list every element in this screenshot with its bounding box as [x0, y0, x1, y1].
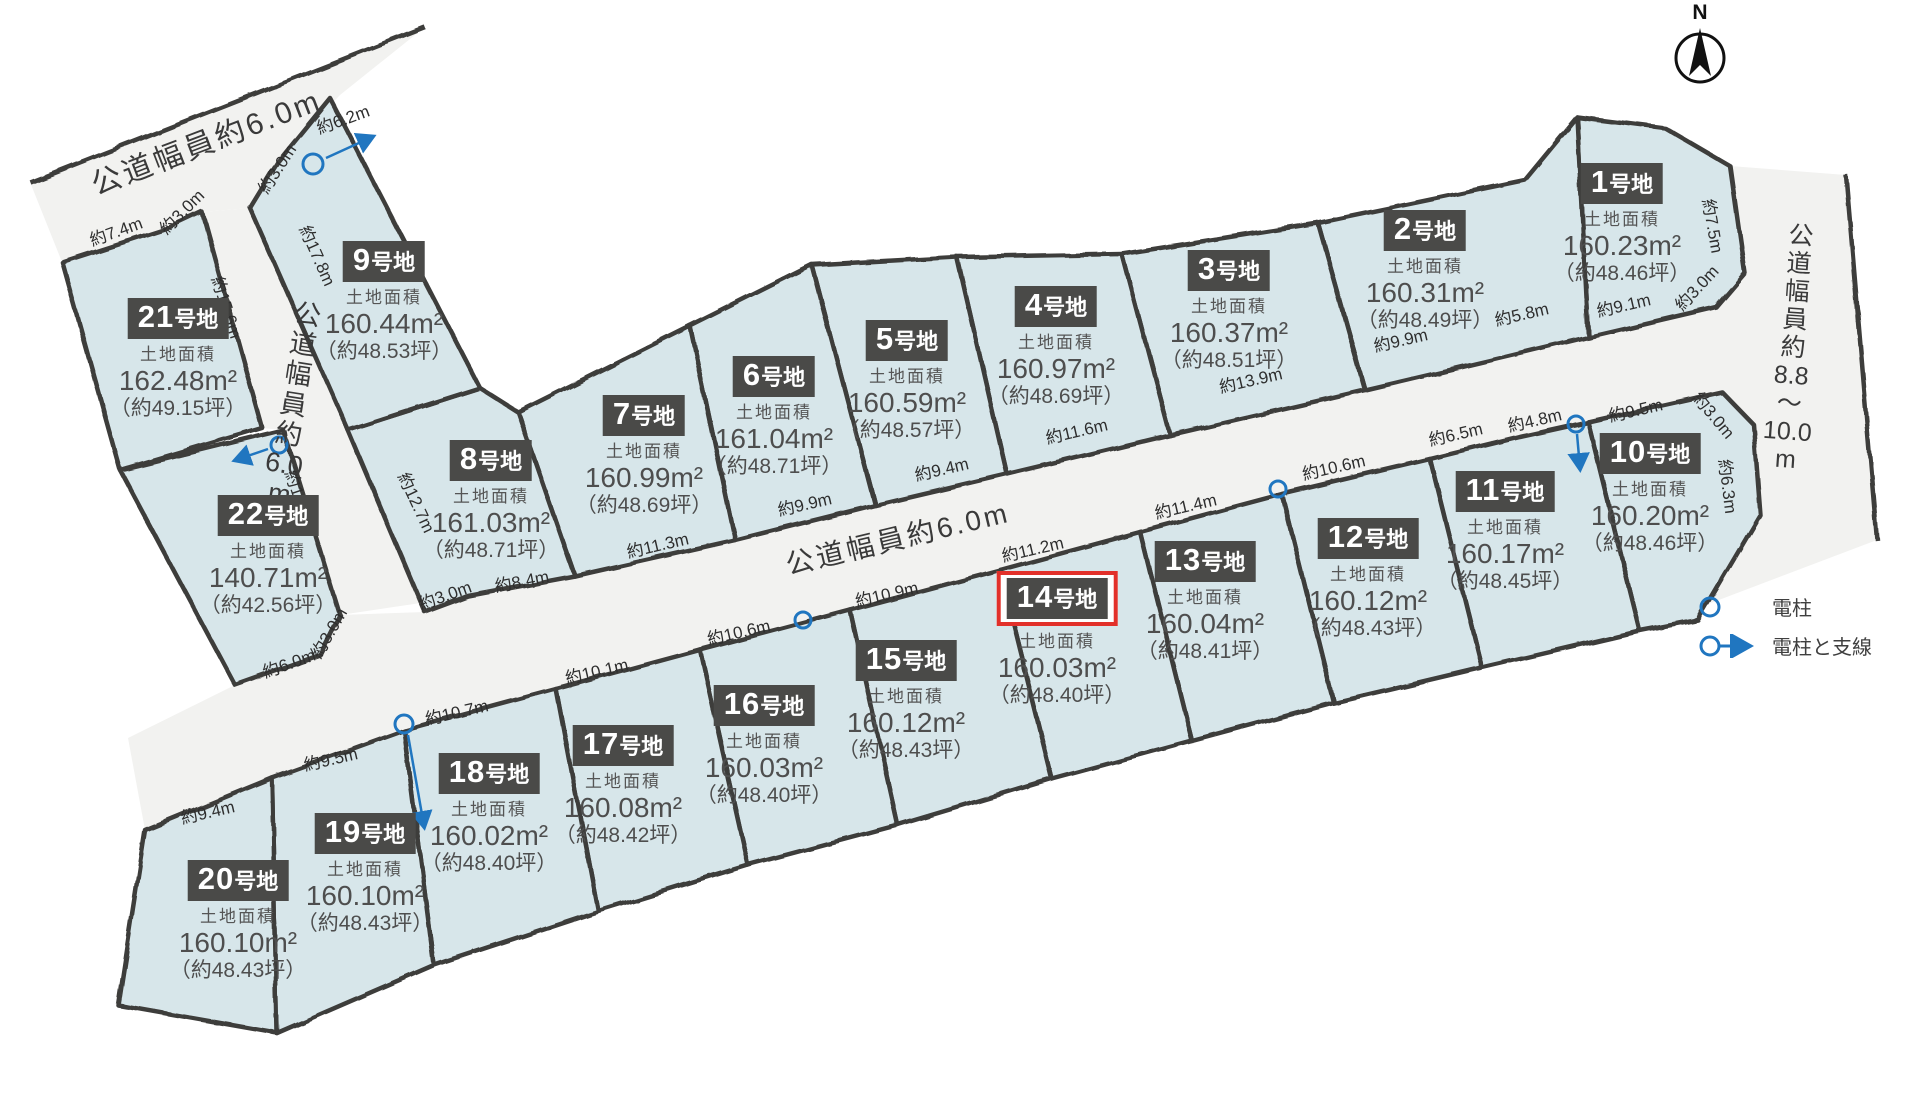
road-label-char: 〜 [1776, 389, 1803, 419]
road-label-char: 6.0 [263, 446, 305, 482]
area-value: 160.10m² [297, 881, 434, 912]
plot-badge: 1号地 [1581, 163, 1663, 204]
area-tsubo: （約48.40坪） [989, 684, 1126, 707]
area-value: 161.04m² [706, 424, 843, 455]
plot-number: 20 [198, 861, 234, 896]
plot-badge: 15号地 [856, 640, 957, 681]
plot-number: 3 [1198, 251, 1216, 286]
area-tsubo: （約48.43坪） [170, 959, 307, 982]
road-label-char: 員 [278, 387, 309, 421]
area-caption: 土地面積 [1582, 481, 1719, 500]
area-caption: 土地面積 [170, 908, 307, 927]
plot-label-16: 16号地土地面積160.03m²（約48.40坪） [696, 685, 833, 807]
road-label-char: 道 [1786, 249, 1813, 279]
legend-pole-wire-row: 電柱と支線 [1688, 631, 1872, 660]
plot-label-3: 3号地土地面積160.37m²（約48.51坪） [1161, 250, 1298, 372]
plot-suffix: 号地 [1364, 527, 1408, 552]
area-caption: 土地面積 [555, 773, 692, 792]
plot-badge: 4号地 [1015, 286, 1097, 327]
plot-label-7: 7号地土地面積160.99m²（約48.69坪） [576, 395, 713, 517]
plot-label-17: 17号地土地面積160.08m²（約48.42坪） [555, 725, 692, 847]
area-tsubo: （約48.42坪） [555, 824, 692, 847]
plot-badge: 13号地 [1155, 541, 1256, 582]
road-label-char: 約 [273, 417, 304, 451]
area-caption: 土地面積 [110, 346, 247, 365]
plot-label-5: 5号地土地面積160.59m²（約48.57坪） [839, 320, 976, 442]
area-tsubo: （約48.51坪） [1161, 349, 1298, 372]
area-tsubo: （約48.46坪） [1582, 532, 1719, 555]
plot-label-9: 9号地土地面積160.44m²（約48.53坪） [316, 241, 453, 363]
area-tsubo: （約48.43坪） [1300, 617, 1437, 640]
plot-suffix: 号地 [1201, 550, 1245, 575]
plot-badge: 10号地 [1600, 433, 1701, 474]
plot-number: 1 [1591, 164, 1609, 199]
area-tsubo: （約48.40坪） [696, 784, 833, 807]
plot-number: 7 [613, 396, 631, 431]
road-label-char: m [1774, 445, 1797, 474]
area-caption: 土地面積 [1357, 258, 1494, 277]
plot-label-10: 10号地土地面積160.20m²（約48.46坪） [1582, 433, 1719, 555]
legend-pole-row: 電柱 [1688, 592, 1872, 621]
plot-badge: 11号地 [1456, 471, 1555, 512]
area-value: 160.03m² [696, 753, 833, 784]
area-value: 160.12m² [838, 708, 975, 739]
plot-label-21: 21号地土地面積162.48m²（約49.15坪） [110, 298, 247, 420]
area-caption: 土地面積 [297, 861, 434, 880]
area-tsubo: （約48.53坪） [316, 340, 453, 363]
area-caption: 土地面積 [989, 633, 1126, 652]
area-caption: 土地面積 [988, 334, 1125, 353]
land-plot-map: 約7.4m約3.0m約15.6m約3.0m約6.2m約17.8m約14.7m約1… [0, 0, 1920, 1100]
north-n-text: N [1668, 2, 1732, 23]
road-label-char: 幅 [1784, 277, 1811, 307]
area-caption: 土地面積 [839, 368, 976, 387]
plot-number: 11 [1466, 472, 1501, 507]
area-value: 160.03m² [989, 653, 1126, 684]
plot-suffix: 号地 [761, 365, 805, 390]
area-tsubo: （約48.49坪） [1357, 309, 1494, 332]
plot-badge: 20号地 [188, 860, 289, 901]
plot-label-8: 8号地土地面積161.03m²（約48.71坪） [423, 440, 560, 562]
plot-suffix: 号地 [1412, 219, 1456, 244]
plot-badge: 22号地 [218, 495, 319, 536]
plot-suffix: 号地 [371, 250, 415, 275]
legend-pole-wire-label: 電柱と支線 [1772, 631, 1872, 660]
legend-pole-label: 電柱 [1772, 592, 1812, 621]
utility-pole-icon [1688, 595, 1760, 619]
plot-number: 22 [228, 496, 264, 531]
plot-number: 21 [138, 299, 174, 334]
plot-badge: 9号地 [343, 241, 425, 282]
area-tsubo: （約49.15坪） [110, 397, 247, 420]
area-caption: 土地面積 [423, 488, 560, 507]
plot-label-6: 6号地土地面積161.04m²（約48.71坪） [706, 356, 843, 478]
road-label-char: 員 [1782, 305, 1809, 335]
area-tsubo: （約48.41坪） [1137, 640, 1274, 663]
area-caption: 土地面積 [316, 289, 453, 308]
area-tsubo: （約48.69坪） [576, 494, 713, 517]
plot-number: 19 [325, 814, 361, 849]
area-tsubo: （約48.46坪） [1554, 262, 1691, 285]
area-value: 162.48m² [110, 366, 247, 397]
plot-number: 13 [1165, 542, 1201, 577]
road-label-char: 幅 [282, 358, 313, 392]
plot-number: 18 [449, 754, 485, 789]
plot-label-14: 14号地土地面積160.03m²（約48.40坪） [989, 571, 1126, 707]
plot-suffix: 号地 [234, 869, 278, 894]
area-value: 140.71m² [200, 563, 337, 594]
plot-number: 14 [1017, 579, 1053, 614]
area-value: 160.20m² [1582, 501, 1719, 532]
plot-label-13: 13号地土地面積160.04m²（約48.41坪） [1137, 541, 1274, 663]
area-value: 160.04m² [1137, 609, 1274, 640]
area-value: 160.17m² [1437, 539, 1574, 570]
plot-label-4: 4号地土地面積160.97m²（約48.69坪） [988, 286, 1125, 408]
area-value: 160.12m² [1300, 586, 1437, 617]
road-label-char: 8.8 [1773, 360, 1810, 390]
plot-label-19: 19号地土地面積160.10m²（約48.43坪） [297, 813, 434, 935]
area-caption: 土地面積 [576, 443, 713, 462]
area-value: 160.02m² [421, 821, 558, 852]
utility-pole-wire-icon [1688, 634, 1760, 658]
area-value: 160.99m² [576, 463, 713, 494]
area-tsubo: （約48.71坪） [706, 455, 843, 478]
plot-suffix: 号地 [485, 762, 529, 787]
plot-number: 12 [1328, 519, 1364, 554]
road-label-char: 約 [1780, 333, 1807, 363]
plot-suffix: 号地 [361, 822, 405, 847]
area-caption: 土地面積 [421, 801, 558, 820]
plot-suffix: 号地 [1216, 259, 1260, 284]
plot-suffix: 号地 [1043, 295, 1087, 320]
map-legend: 電柱 電柱と支線 [1688, 592, 1872, 670]
plot-badge: 18号地 [439, 753, 540, 794]
area-caption: 土地面積 [1300, 566, 1437, 585]
area-caption: 土地面積 [1554, 211, 1691, 230]
plot-label-20: 20号地土地面積160.10m²（約48.43坪） [170, 860, 307, 982]
plot-suffix: 号地 [1609, 172, 1653, 197]
area-value: 161.03m² [423, 508, 560, 539]
plot-badge: 8号地 [450, 440, 532, 481]
plot-badge: 17号地 [573, 725, 674, 766]
road-label-char: 公 [1788, 221, 1815, 251]
plot-number: 15 [866, 641, 902, 676]
plot-badge: 3号地 [1188, 250, 1270, 291]
area-tsubo: （約48.45坪） [1437, 570, 1574, 593]
area-tsubo: （約48.43坪） [838, 739, 975, 762]
road-label-char: 道 [287, 328, 318, 362]
plot-number: 6 [743, 357, 761, 392]
north-label: N [1668, 2, 1732, 23]
area-value: 160.10m² [170, 928, 307, 959]
area-caption: 土地面積 [838, 688, 975, 707]
plot-suffix: 号地 [619, 734, 663, 759]
area-value: 160.08m² [555, 793, 692, 824]
area-caption: 土地面積 [1137, 589, 1274, 608]
area-tsubo: （約42.56坪） [200, 594, 337, 617]
plot-suffix: 号地 [478, 449, 522, 474]
area-tsubo: （約48.57坪） [839, 419, 976, 442]
plot-badge: 14号地 [1007, 578, 1108, 619]
plot-suffix: 号地 [1053, 587, 1097, 612]
plot-number: 9 [353, 242, 371, 277]
area-tsubo: （約48.43坪） [297, 912, 434, 935]
road-label-char: 10.0 [1762, 416, 1813, 447]
plot-label-1: 1号地土地面積160.23m²（約48.46坪） [1554, 163, 1691, 285]
north-arrow-icon [1676, 28, 1724, 82]
area-value: 160.97m² [988, 354, 1125, 385]
area-value: 160.31m² [1357, 278, 1494, 309]
plot-suffix: 号地 [264, 504, 308, 529]
plot-suffix: 号地 [174, 307, 218, 332]
area-tsubo: （約48.69坪） [988, 385, 1125, 408]
plot-number: 17 [583, 726, 619, 761]
plot-label-15: 15号地土地面積160.12m²（約48.43坪） [838, 640, 975, 762]
plot-number: 2 [1394, 211, 1412, 246]
plot-badge: 16号地 [714, 685, 815, 726]
area-value: 160.44m² [316, 309, 453, 340]
highlight-box: 14号地 [997, 571, 1118, 626]
plot-badge: 21号地 [128, 298, 229, 339]
plot-suffix: 号地 [902, 649, 946, 674]
area-value: 160.37m² [1161, 318, 1298, 349]
plot-suffix: 号地 [631, 404, 675, 429]
plot-label-22: 22号地土地面積140.71m²（約42.56坪） [200, 495, 337, 617]
plot-label-12: 12号地土地面積160.12m²（約48.43坪） [1300, 518, 1437, 640]
area-value: 160.23m² [1554, 231, 1691, 262]
plot-label-2: 2号地土地面積160.31m²（約48.49坪） [1357, 210, 1494, 332]
plot-suffix: 号地 [760, 694, 804, 719]
area-tsubo: （約48.40坪） [421, 852, 558, 875]
plot-number: 4 [1025, 287, 1043, 322]
plot-number: 16 [724, 686, 760, 721]
plot-badge: 2号地 [1384, 210, 1466, 251]
area-caption: 土地面積 [1437, 519, 1574, 538]
area-caption: 土地面積 [1161, 298, 1298, 317]
area-tsubo: （約48.71坪） [423, 539, 560, 562]
plot-number: 5 [876, 321, 894, 356]
plot-label-11: 11号地土地面積160.17m²（約48.45坪） [1437, 471, 1574, 593]
plot-badge: 6号地 [733, 356, 815, 397]
plot-badge: 7号地 [603, 395, 685, 436]
plot-badge: 5号地 [866, 320, 948, 361]
plot-label-18: 18号地土地面積160.02m²（約48.40坪） [421, 753, 558, 875]
plot-number: 10 [1610, 434, 1646, 469]
area-caption: 土地面積 [706, 404, 843, 423]
plot-suffix: 号地 [1646, 442, 1690, 467]
plot-number: 8 [460, 441, 478, 476]
area-caption: 土地面積 [200, 543, 337, 562]
plot-suffix: 号地 [1500, 480, 1544, 505]
plot-badge: 12号地 [1318, 518, 1419, 559]
plot-badge: 19号地 [315, 813, 416, 854]
area-caption: 土地面積 [696, 733, 833, 752]
area-value: 160.59m² [839, 388, 976, 419]
plot-suffix: 号地 [894, 329, 938, 354]
